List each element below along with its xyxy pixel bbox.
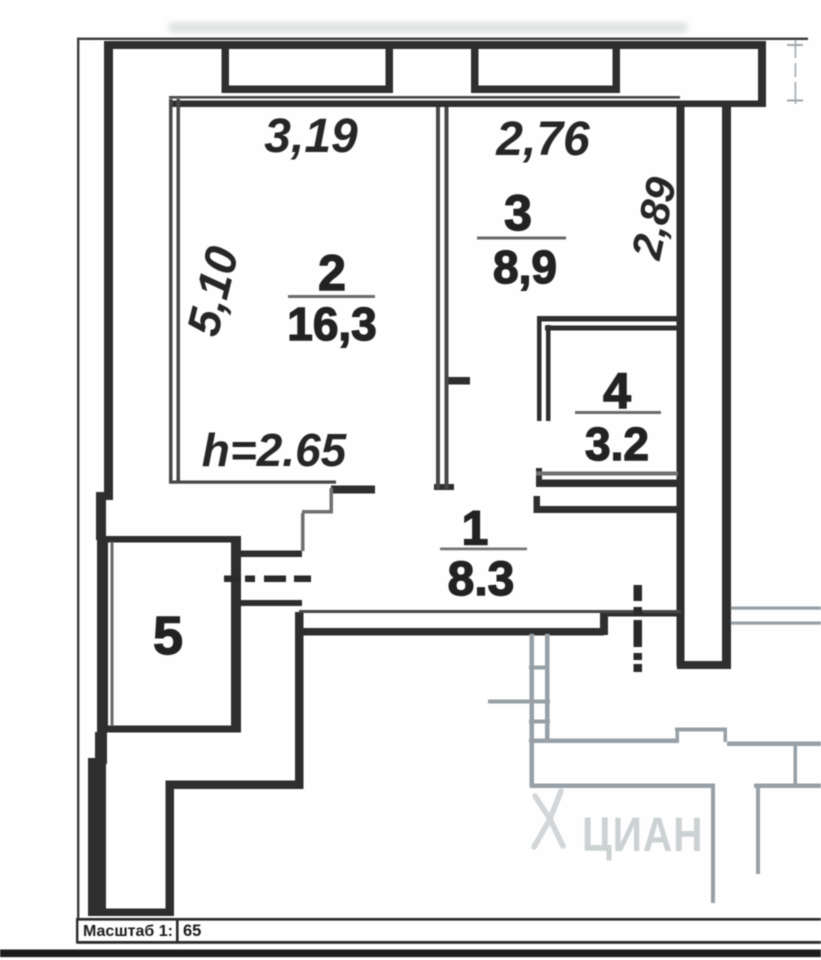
- svg-text:8,9: 8,9: [493, 241, 557, 293]
- svg-text:2: 2: [318, 245, 346, 301]
- svg-text:4: 4: [603, 363, 631, 419]
- svg-text:3.2: 3.2: [585, 418, 649, 470]
- svg-text:Масштаб 1:: Масштаб 1:: [83, 923, 173, 940]
- svg-text:5: 5: [153, 606, 183, 666]
- svg-text:65: 65: [183, 922, 201, 940]
- svg-text:ЦИАН: ЦИАН: [582, 809, 703, 862]
- svg-text:3,19: 3,19: [264, 110, 358, 163]
- svg-text:h=2.65: h=2.65: [202, 424, 348, 476]
- svg-text:2,76: 2,76: [495, 113, 590, 166]
- svg-text:3: 3: [504, 185, 532, 241]
- svg-text:16,3: 16,3: [287, 298, 377, 350]
- svg-text:8.3: 8.3: [448, 553, 515, 606]
